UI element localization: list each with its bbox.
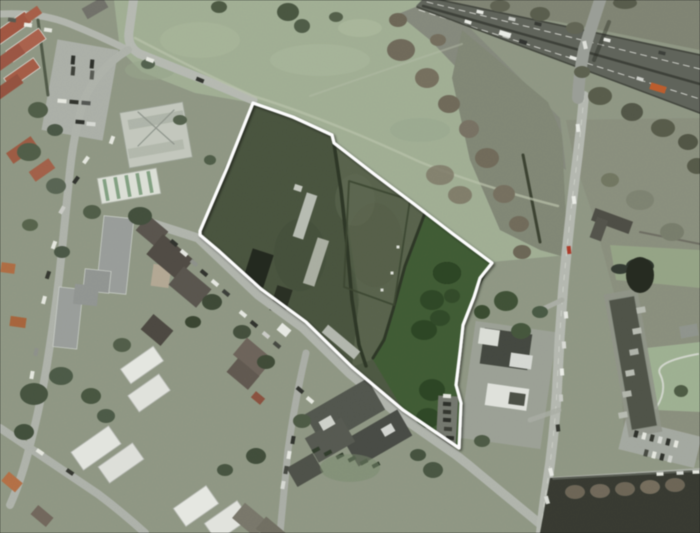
satellite-map-canvas[interactable] bbox=[0, 0, 700, 533]
imagery-grain-overlay bbox=[0, 0, 700, 533]
aerial-imagery[interactable] bbox=[0, 0, 700, 533]
